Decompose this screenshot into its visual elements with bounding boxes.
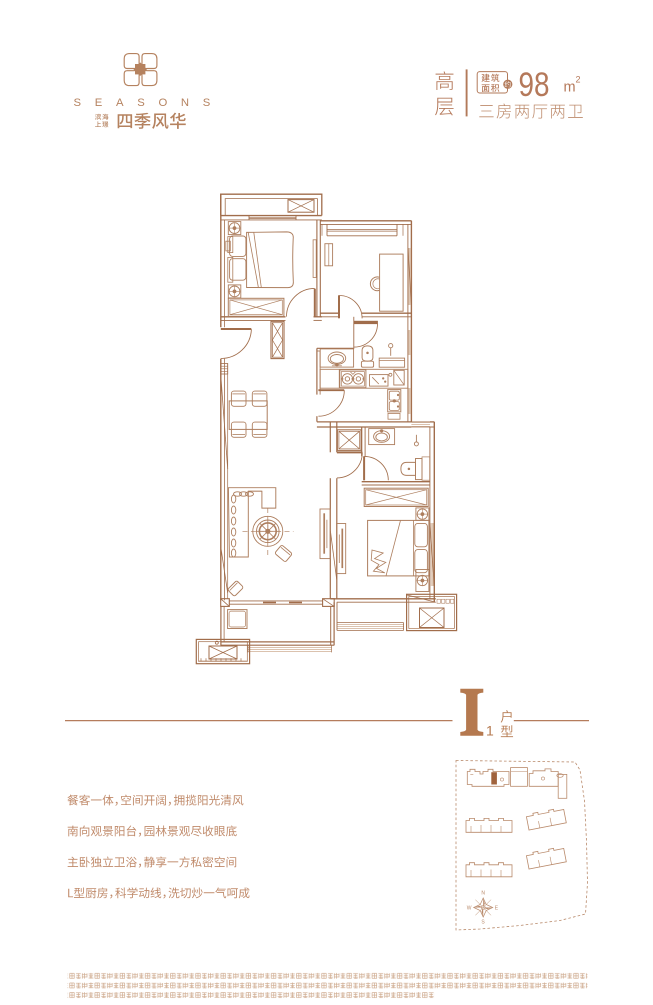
svg-text:1: 1 xyxy=(486,723,494,739)
svg-text:E: E xyxy=(495,906,499,912)
svg-text:N: N xyxy=(481,891,485,897)
svg-text:2: 2 xyxy=(576,75,581,85)
svg-text:S: S xyxy=(481,920,485,926)
svg-text:W: W xyxy=(467,906,472,912)
svg-text:SEASONS: SEASONS xyxy=(74,97,225,109)
svg-text:m: m xyxy=(564,79,576,95)
svg-text:98: 98 xyxy=(519,66,550,104)
